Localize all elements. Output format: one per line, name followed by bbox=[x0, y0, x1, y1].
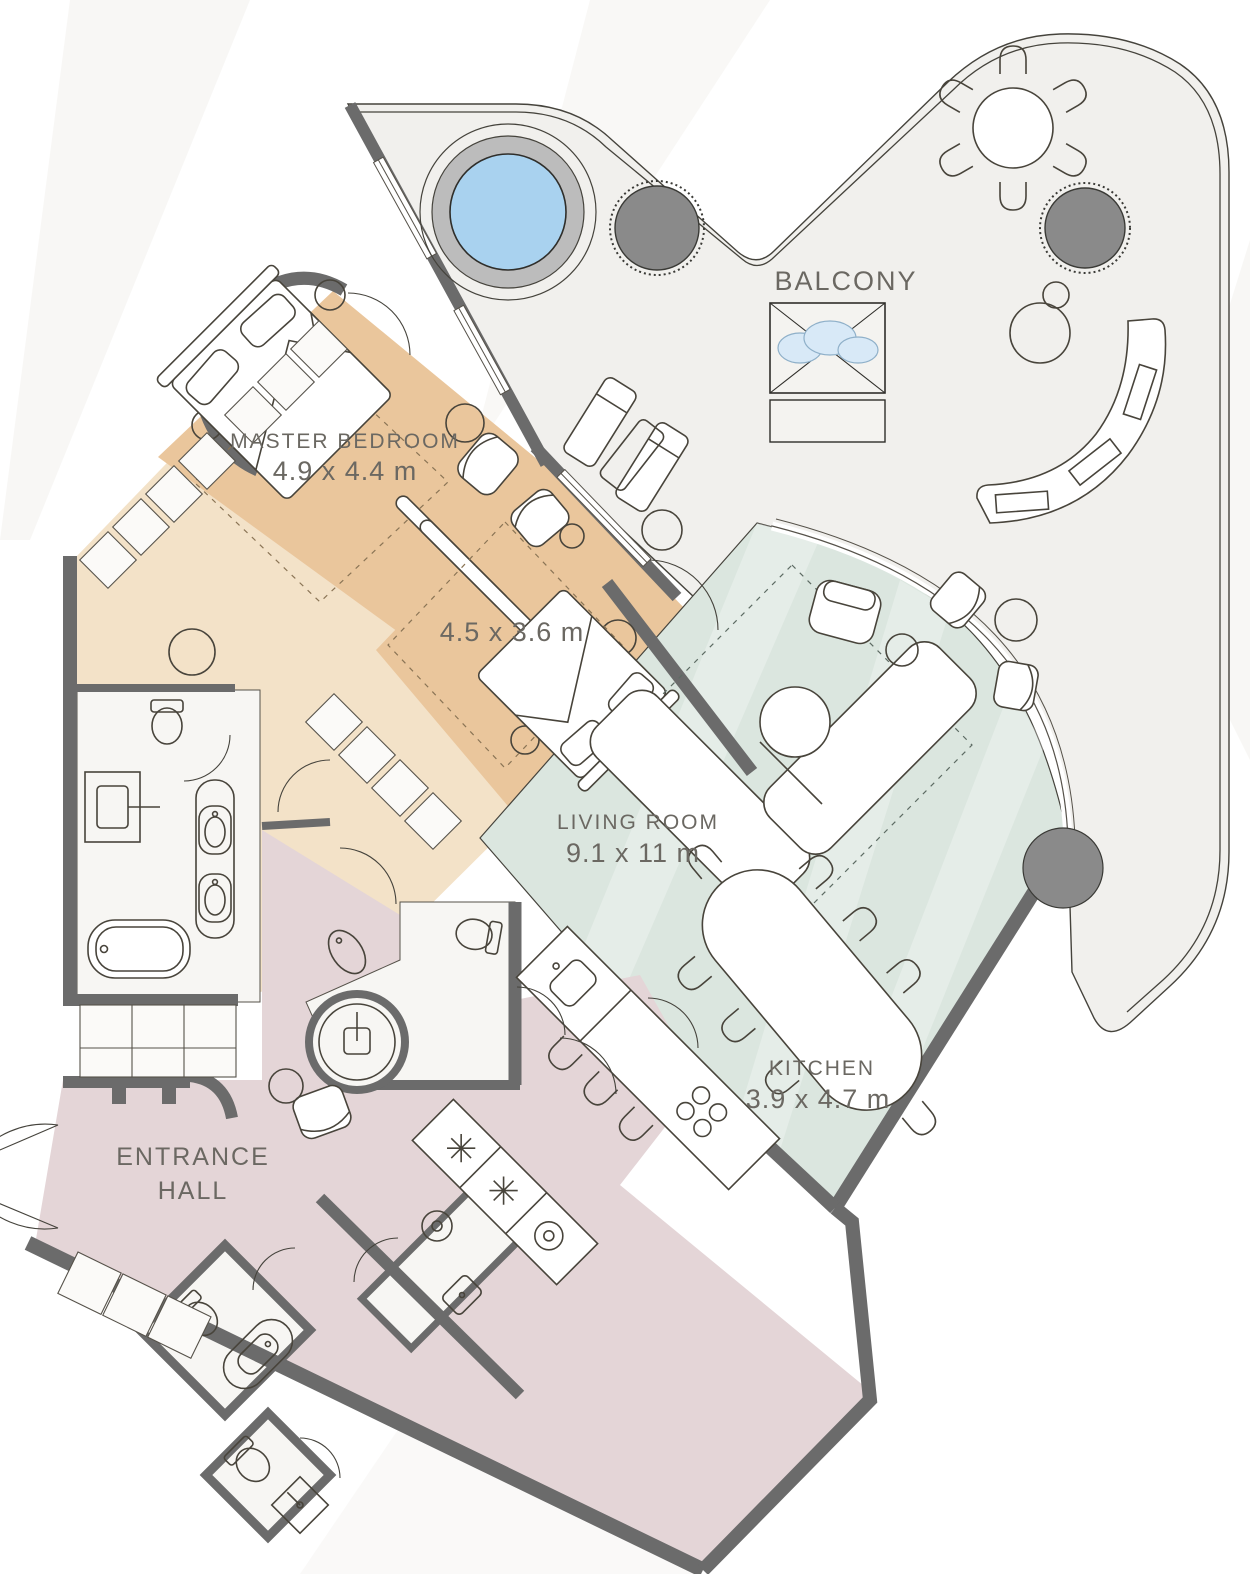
kitchen-dimensions: 3.9 x 4.7 m bbox=[746, 1084, 891, 1114]
bathtub-icon bbox=[88, 920, 190, 978]
fireplace-icon bbox=[1023, 828, 1103, 908]
tile-grid bbox=[80, 1005, 236, 1077]
round-shower-icon bbox=[309, 994, 405, 1090]
skylight-icon bbox=[770, 303, 885, 442]
master-bedroom-dimensions: 4.9 x 4.4 m bbox=[273, 456, 418, 486]
balcony-label: BALCONY bbox=[774, 266, 917, 296]
floor-plan: BALCONY MASTER BEDROOM 4.9 x 4.4 m 4.5 x… bbox=[0, 0, 1250, 1574]
living-room-label: LIVING ROOM bbox=[557, 811, 719, 834]
bedroom2-dimensions: 4.5 x 3.6 m bbox=[440, 617, 585, 647]
entrance-hall-label-line1: ENTRANCE bbox=[116, 1143, 270, 1171]
entrance-hall-label-line2: HALL bbox=[158, 1177, 229, 1205]
chair-icon bbox=[992, 660, 1039, 712]
living-room-dimensions: 9.1 x 11 m bbox=[566, 838, 700, 868]
master-bedroom-label: MASTER BEDROOM bbox=[230, 430, 460, 453]
kitchen-label: KITCHEN bbox=[769, 1057, 875, 1080]
coffee-table-icon bbox=[760, 687, 830, 757]
